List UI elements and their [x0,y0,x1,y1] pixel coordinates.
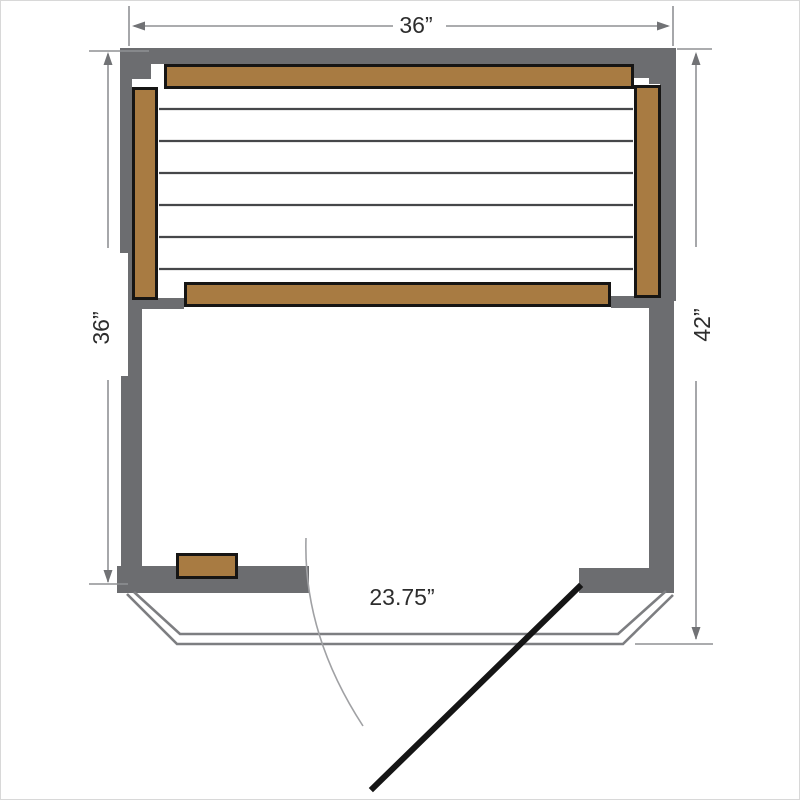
dimension-door-width: 23.75” [369,584,434,610]
left-bench-board [134,89,157,299]
right-bench-board [636,87,660,297]
arrow-up-icon [692,52,701,65]
left-wall-lower [121,376,142,568]
top-width-label: 36” [399,12,432,38]
arrow-right-icon [657,22,670,31]
right-wall-lower [649,301,674,593]
arrow-up-icon [104,52,113,65]
left-depth-label: 36” [88,311,114,344]
door-width-label: 23.75” [369,584,434,610]
arrow-left-icon [132,22,145,31]
door [306,538,579,788]
right-wall-upper [660,48,676,301]
front-bench-board [186,284,610,306]
door-panel [373,587,579,788]
heater-box [178,555,237,578]
back-bench-board [166,66,633,88]
dimension-top-width: 36” [129,6,673,46]
top-wall [121,48,676,64]
bottom-right-door-stub [579,568,649,593]
benches [134,66,660,578]
bench-slats [159,109,633,269]
right-depth-label: 42” [689,308,715,341]
arrow-down-icon [104,570,113,583]
floorplan-svg: 36” 36” 42” 23.75” [1,1,800,800]
sauna-floorplan-diagram: 36” 36” 42” 23.75” [0,0,800,800]
walls [117,48,676,593]
left-wall-upper [120,48,132,253]
arrow-down-icon [692,627,701,640]
door-swing-arc [306,538,363,726]
